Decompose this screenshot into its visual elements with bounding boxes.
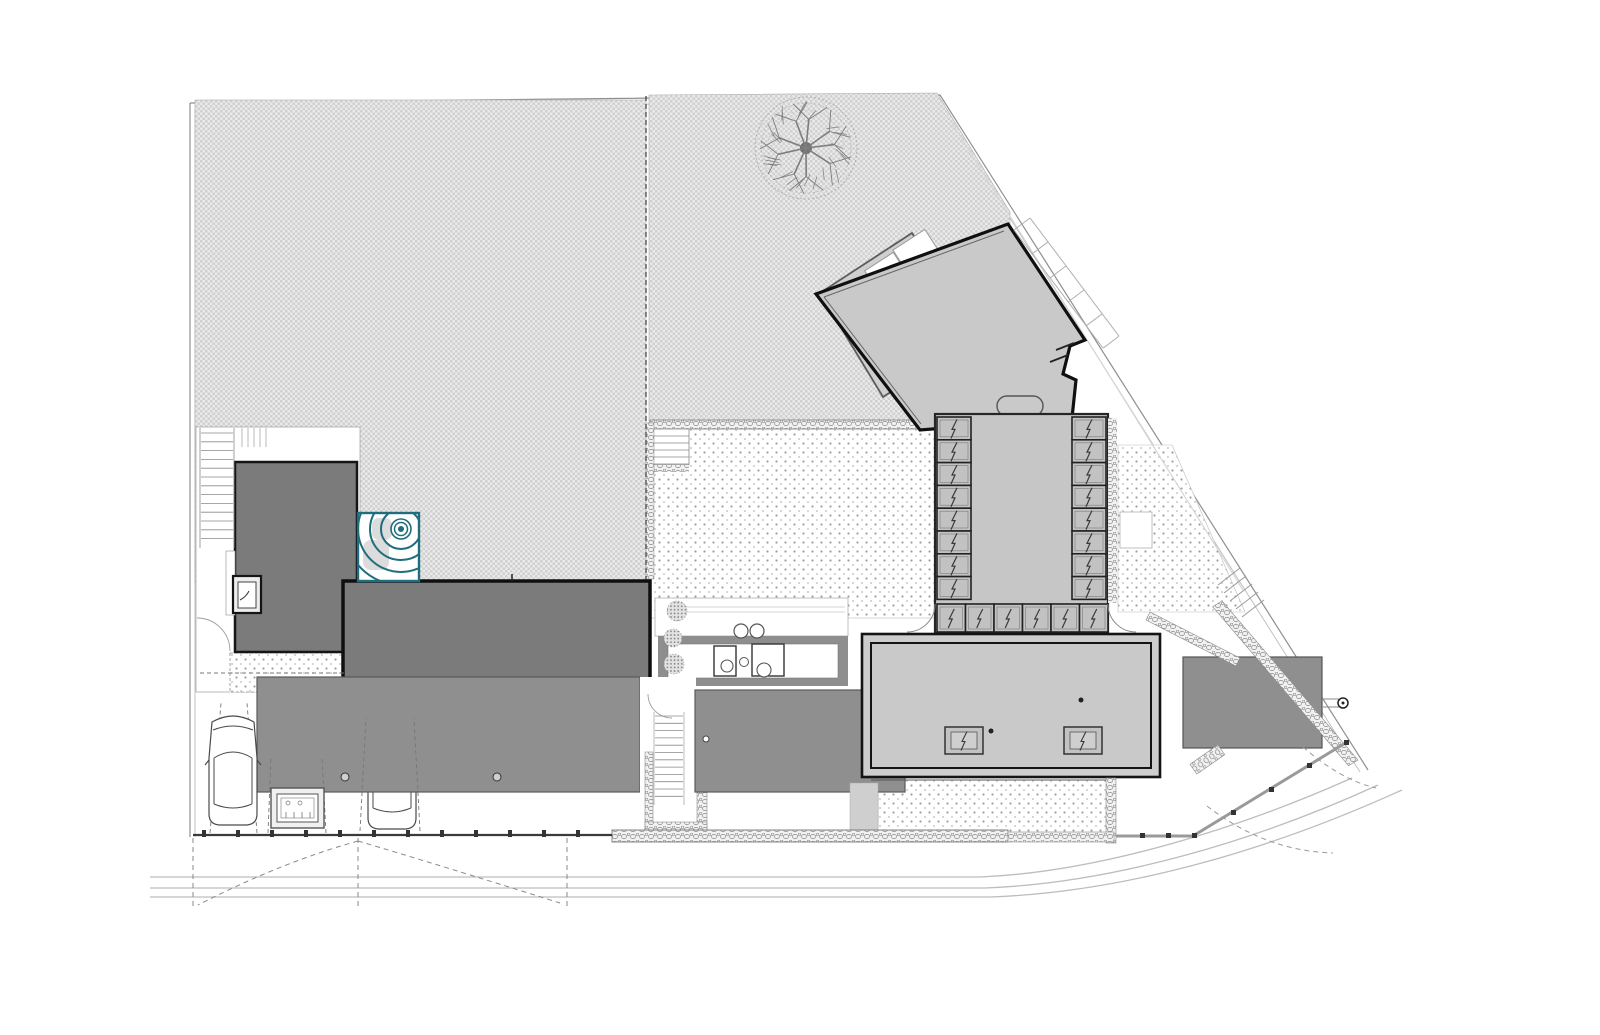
roof-point [989, 729, 994, 734]
fence-post [1231, 810, 1236, 815]
glass-panel [937, 531, 971, 554]
fence-post [236, 830, 240, 837]
skylight-inner [951, 732, 977, 749]
carport-canopy-roof [257, 677, 640, 792]
shrub [667, 601, 687, 621]
central-gravel-courtyard [649, 428, 935, 618]
stool [750, 624, 764, 638]
glass-panel [1072, 463, 1106, 486]
glass-panel [937, 463, 971, 486]
fence-post [1307, 763, 1312, 768]
glass-panel [994, 604, 1023, 632]
gallery-glazing-right [1072, 417, 1106, 599]
fence-post [1269, 787, 1274, 792]
west-long-dark-roof [343, 581, 650, 689]
stool [734, 624, 748, 638]
stool [757, 663, 771, 677]
glass-panel [1072, 485, 1106, 508]
glass-panel [937, 485, 971, 508]
fence-post [474, 830, 478, 837]
shrub [664, 654, 684, 674]
stool [740, 658, 749, 667]
shrub [664, 629, 682, 647]
fence-post [440, 830, 444, 837]
roof-point [1079, 698, 1084, 703]
fence-post [202, 830, 206, 837]
glass-panel [937, 508, 971, 531]
glass-panel [1072, 440, 1106, 463]
glass-panel [937, 577, 971, 600]
stool [721, 660, 733, 672]
glass-panel [1051, 604, 1080, 632]
glass-panel [937, 417, 971, 440]
glass-panel [937, 440, 971, 463]
roof-drain [341, 773, 349, 781]
fence-post [406, 830, 410, 837]
parked-car [205, 716, 261, 825]
fence-post [372, 830, 376, 837]
fence-post [304, 830, 308, 837]
courtyard-steps-cap [653, 465, 689, 472]
site-plan-drawing [0, 0, 1600, 1035]
fence-post [1166, 833, 1171, 838]
fence-post [576, 830, 580, 837]
south-gravel-strip [878, 780, 1108, 833]
glass-panel [966, 604, 995, 632]
fence-post [1192, 833, 1197, 838]
glass-panel [1072, 577, 1106, 600]
fence-post [338, 830, 342, 837]
roof-drain [493, 773, 501, 781]
gallery-glazing-south [937, 604, 1108, 632]
glass-panel [1072, 554, 1106, 577]
glass-panel [937, 554, 971, 577]
glass-panel [1072, 417, 1106, 440]
gallery-east-wall [1108, 418, 1117, 603]
fence-post [1344, 740, 1349, 745]
glass-panel [1023, 604, 1052, 632]
west-small-dark-roof [235, 462, 357, 652]
gallery-glazing-left [937, 417, 971, 599]
glass-panel [1072, 531, 1106, 554]
bbq-grill-unit [271, 788, 324, 828]
glass-panel [1072, 508, 1106, 531]
fence-post [508, 830, 512, 837]
fence-post [542, 830, 546, 837]
site-plan-sheet [0, 0, 1600, 1035]
skylight-inner [1070, 732, 1096, 749]
roof-drain [703, 736, 709, 742]
east-terrace-planter [1120, 512, 1152, 548]
lot-line-wall [646, 423, 654, 579]
glass-panel [1080, 604, 1109, 632]
main-living-roof [862, 634, 1160, 780]
fence-post [1140, 833, 1145, 838]
canopy-apron [850, 783, 878, 832]
fence-post [270, 830, 274, 837]
glass-panel [937, 604, 966, 632]
retaining-wall-band [650, 420, 937, 429]
courtyard-steps [653, 429, 689, 465]
